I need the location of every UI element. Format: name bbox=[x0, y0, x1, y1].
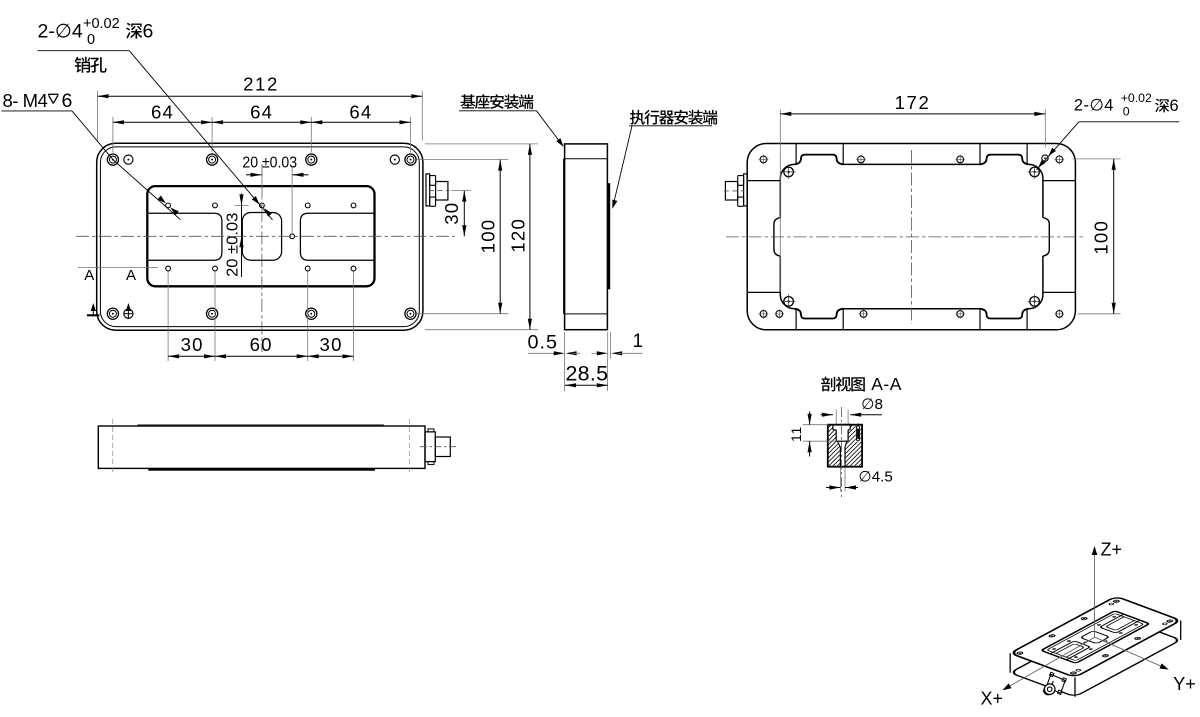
svg-text:6: 6 bbox=[62, 90, 73, 112]
svg-text:20 ±0.03: 20 ±0.03 bbox=[225, 212, 242, 276]
svg-text:64: 64 bbox=[349, 102, 372, 123]
svg-text:0: 0 bbox=[1123, 105, 1130, 119]
svg-text:212: 212 bbox=[243, 74, 279, 95]
svg-text:0.5: 0.5 bbox=[528, 331, 559, 353]
svg-text:120: 120 bbox=[508, 218, 529, 253]
svg-text:0: 0 bbox=[87, 32, 95, 48]
svg-text:28.5: 28.5 bbox=[565, 361, 608, 385]
svg-text:2-∅4: 2-∅4 bbox=[1074, 97, 1114, 115]
svg-text:+0.02: +0.02 bbox=[1121, 91, 1152, 105]
svg-text:2-∅4: 2-∅4 bbox=[38, 20, 83, 42]
svg-text:30: 30 bbox=[441, 202, 462, 225]
svg-text:6: 6 bbox=[1170, 97, 1179, 115]
svg-text:1: 1 bbox=[633, 331, 644, 352]
svg-text:64: 64 bbox=[250, 102, 273, 123]
svg-text:A: A bbox=[84, 267, 94, 284]
svg-text:100: 100 bbox=[477, 219, 498, 254]
svg-text:64: 64 bbox=[151, 102, 174, 123]
svg-text:A: A bbox=[126, 267, 136, 284]
svg-text:100: 100 bbox=[1091, 220, 1112, 255]
svg-text:X+: X+ bbox=[981, 689, 1004, 709]
svg-text:6: 6 bbox=[143, 20, 154, 42]
svg-text:8- M4: 8- M4 bbox=[3, 90, 48, 111]
svg-text:+0.02: +0.02 bbox=[83, 16, 120, 32]
svg-text:Y+: Y+ bbox=[1173, 674, 1196, 694]
svg-text:30: 30 bbox=[320, 334, 343, 355]
svg-text:11: 11 bbox=[789, 426, 804, 442]
svg-text:20 ±0.03: 20 ±0.03 bbox=[242, 154, 297, 171]
svg-text:∅4.5: ∅4.5 bbox=[859, 468, 893, 485]
svg-text:Z+: Z+ bbox=[1101, 539, 1123, 559]
svg-text:30: 30 bbox=[181, 334, 204, 355]
svg-text:A-A: A-A bbox=[871, 374, 902, 394]
svg-text:172: 172 bbox=[895, 92, 931, 113]
svg-text:∅8: ∅8 bbox=[861, 396, 883, 413]
svg-text:60: 60 bbox=[250, 334, 273, 355]
